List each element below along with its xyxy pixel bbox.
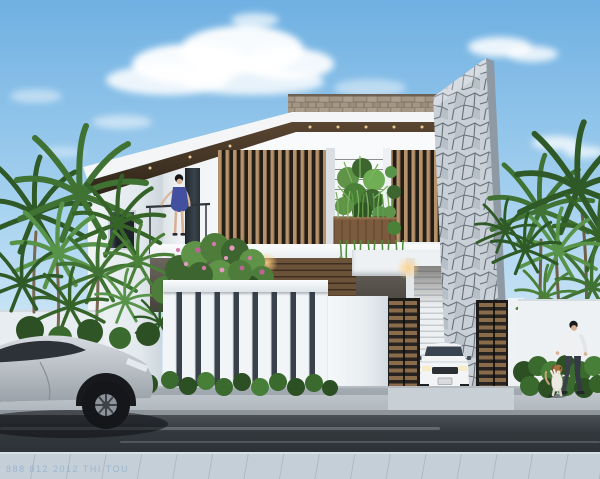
house-render-scene: ee	[0, 0, 600, 479]
watermark-text: 888 812 2012 THI TOU	[6, 464, 129, 474]
pedestrians-layer	[0, 0, 600, 479]
